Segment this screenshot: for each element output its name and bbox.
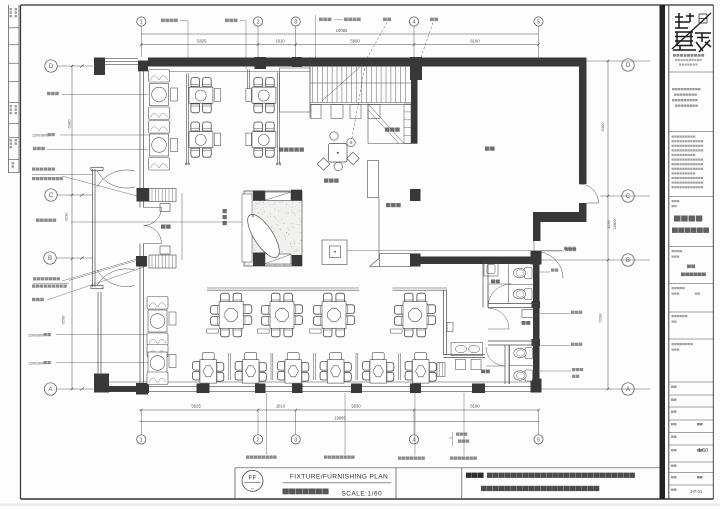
svg-text:3: 3 [294,20,297,26]
svg-text:A: A [626,387,630,393]
svg-text:SCALE:1/60: SCALE:1/60 [342,490,383,497]
svg-text:5825: 5825 [197,39,207,44]
svg-text:B: B [626,258,630,264]
svg-text:5: 5 [537,20,540,26]
svg-text:3230: 3230 [607,220,611,228]
svg-text:6298: 6298 [598,313,603,323]
svg-text:1200x600: 1200x600 [28,362,44,366]
svg-text:2: 2 [257,438,260,444]
svg-text:1810: 1810 [275,39,285,44]
svg-text:FF: FF [249,475,257,482]
svg-text:5830: 5830 [351,404,361,409]
svg-text:2: 2 [257,20,260,26]
svg-text:19085: 19085 [336,28,348,33]
svg-text:6298: 6298 [61,315,66,325]
svg-text:1: 1 [140,438,143,444]
svg-text:6390: 6390 [67,119,72,129]
svg-text:6190: 6190 [470,39,480,44]
svg-text:1:60: 1:60 [698,448,708,454]
svg-text:4: 4 [413,20,416,26]
svg-text:A: A [48,387,52,393]
svg-text:D: D [49,64,54,70]
svg-text:1200x600: 1200x600 [28,334,44,338]
svg-text:19085: 19085 [334,416,346,421]
svg-text:FIXTURE/FURNISHING PLAN: FIXTURE/FURNISHING PLAN [290,473,388,480]
svg-text:5825: 5825 [191,404,201,409]
svg-text:6190: 6190 [470,404,480,409]
svg-text:C: C [49,193,54,199]
svg-text:3230: 3230 [64,212,69,222]
svg-text:1: 1 [140,20,143,26]
svg-text:D: D [626,63,631,69]
svg-text:C: C [626,194,631,200]
svg-text:B: B [48,256,52,262]
svg-text:J-P-01: J-P-01 [690,489,703,494]
svg-text:6400: 6400 [600,122,605,132]
svg-text:5800: 5800 [350,39,360,44]
svg-text:--: -- [251,486,255,492]
svg-text:3: 3 [294,438,297,444]
svg-text:1200x600: 1200x600 [32,134,48,138]
svg-text:1810: 1810 [276,404,286,409]
svg-text:16800: 16800 [613,219,617,230]
svg-text:5: 5 [537,438,540,444]
